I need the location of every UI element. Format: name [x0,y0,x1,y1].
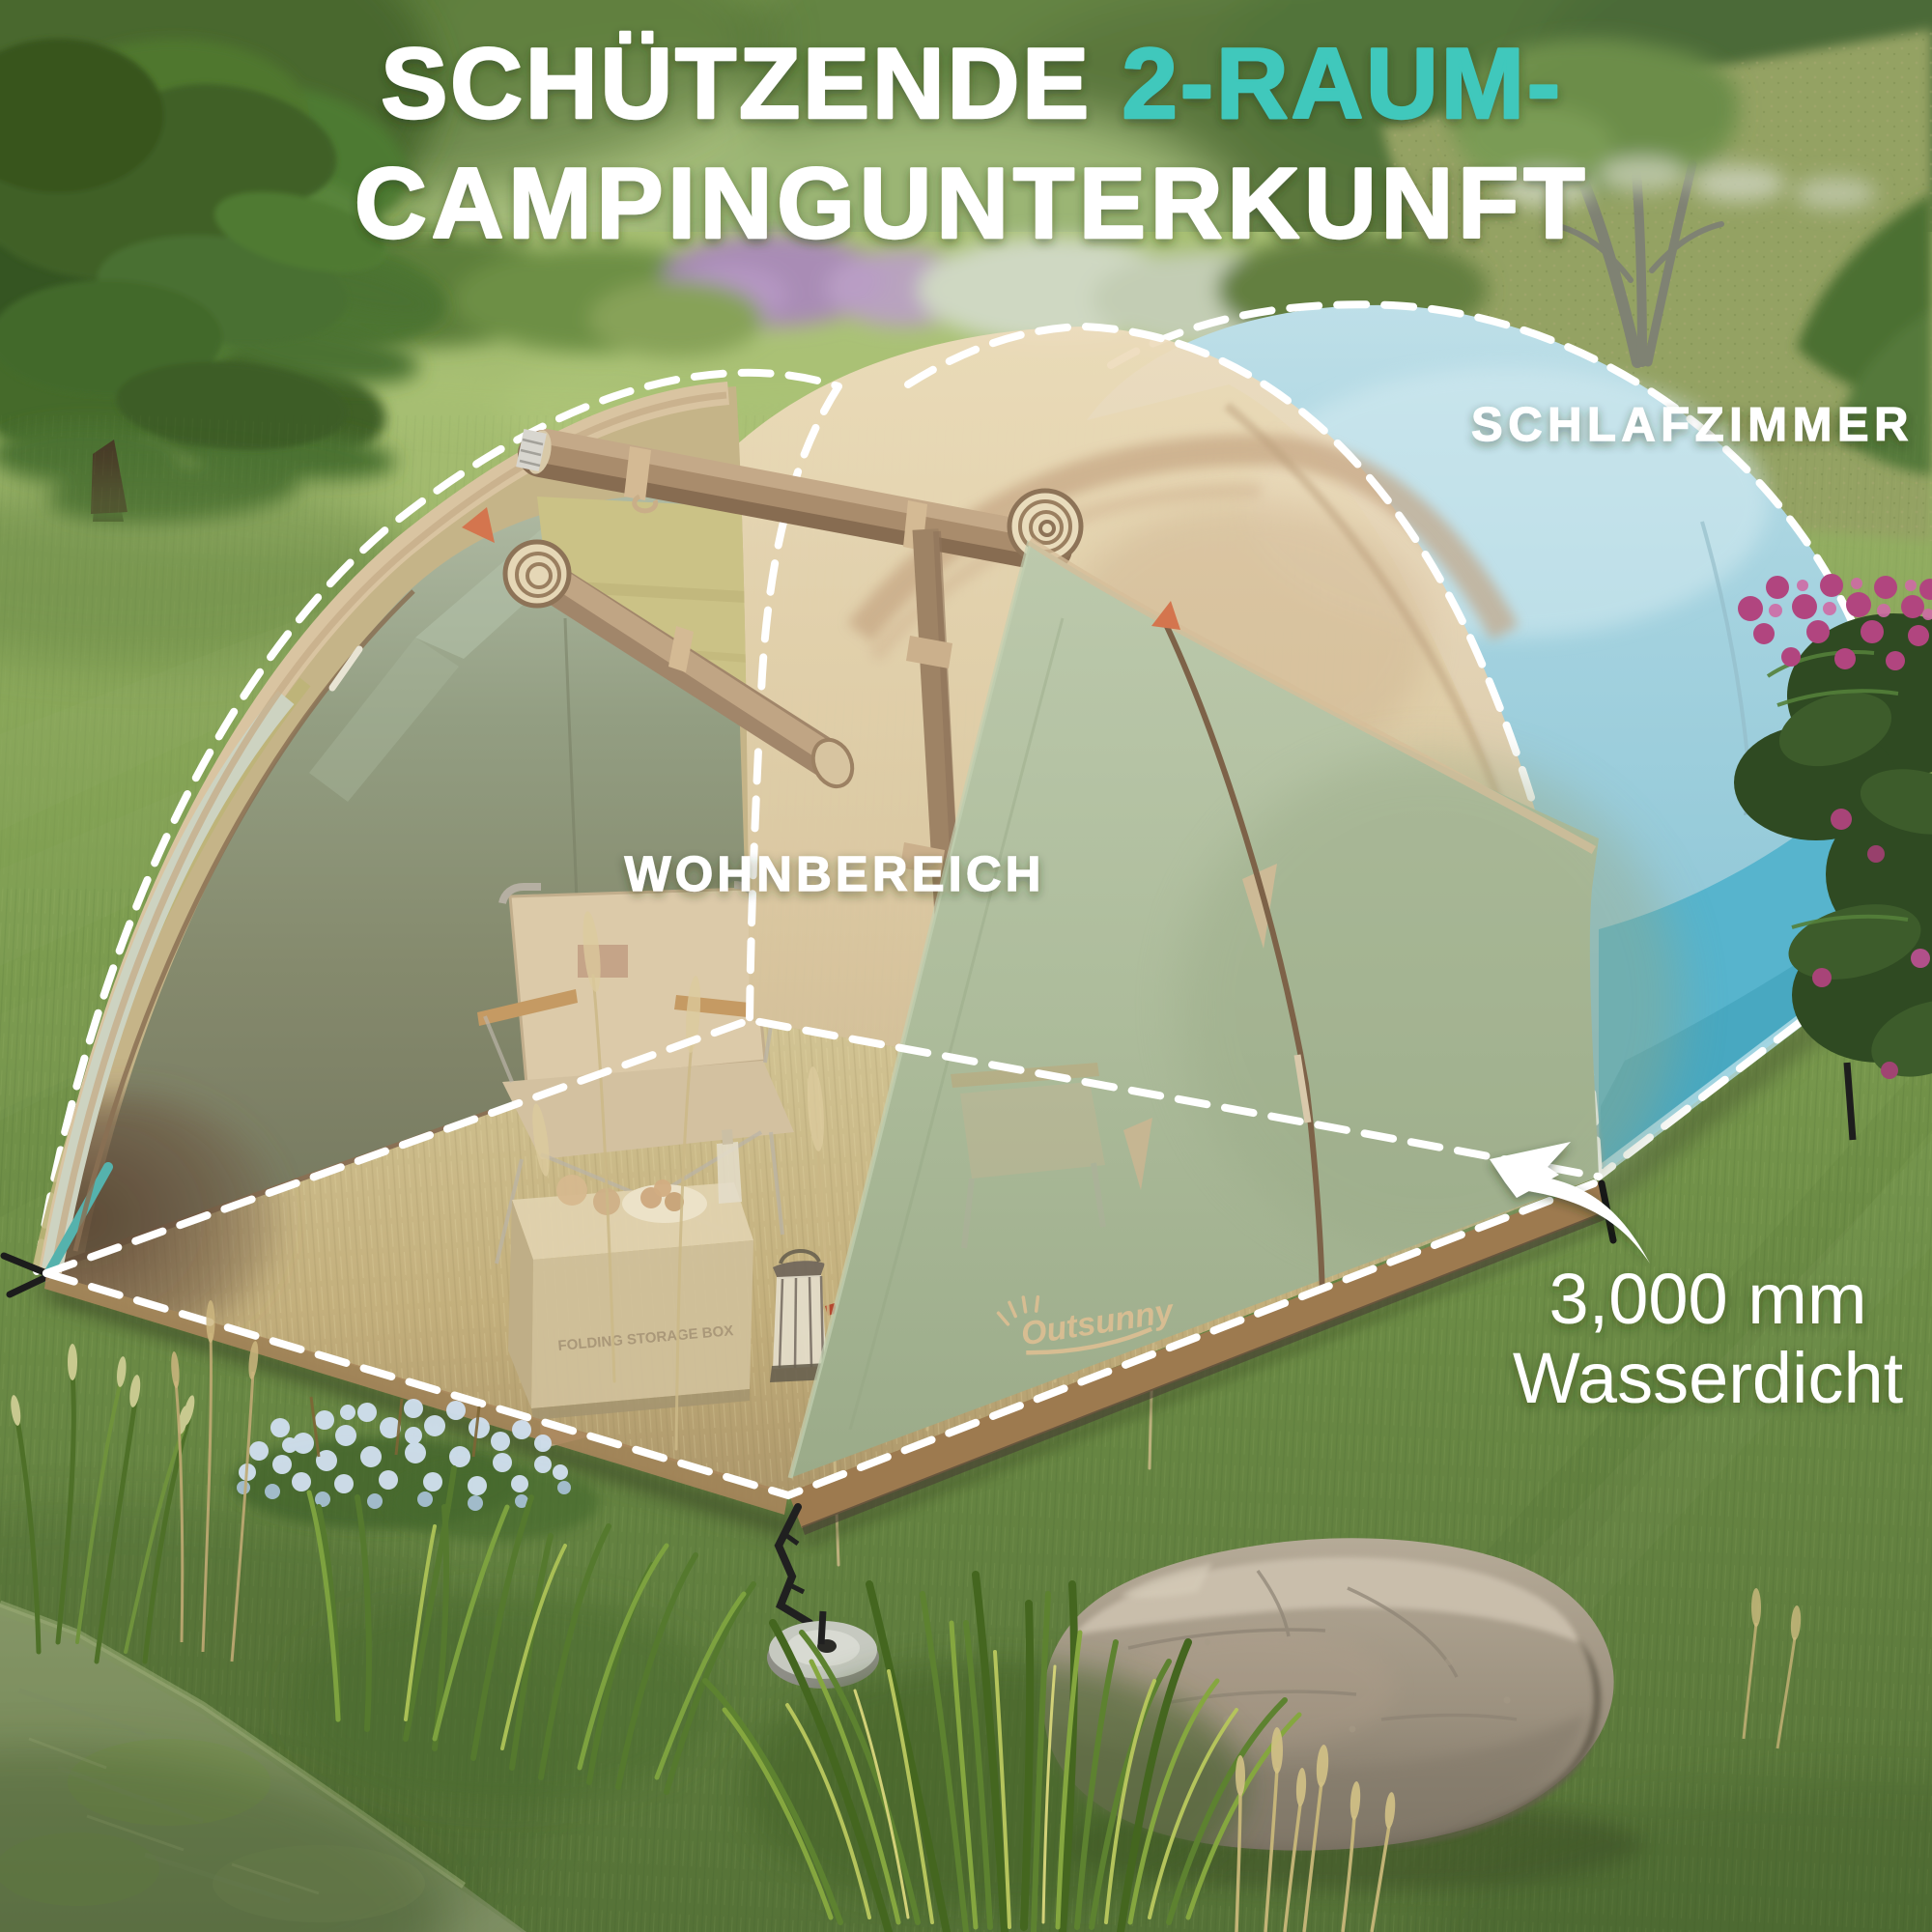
svg-text:CAMPINGUNTERKUNFT: CAMPINGUNTERKUNFT [355,148,1589,260]
svg-text:Wasserdicht: Wasserdicht [1513,1338,1904,1418]
svg-text:SCHLAFZIMMER: SCHLAFZIMMER [1471,399,1914,451]
svg-text:WOHNBEREICH: WOHNBEREICH [625,846,1045,901]
svg-text:SCHÜTZENDE 2-RAUM-: SCHÜTZENDE 2-RAUM- [381,28,1563,140]
svg-text:3,000 mm: 3,000 mm [1548,1259,1866,1339]
